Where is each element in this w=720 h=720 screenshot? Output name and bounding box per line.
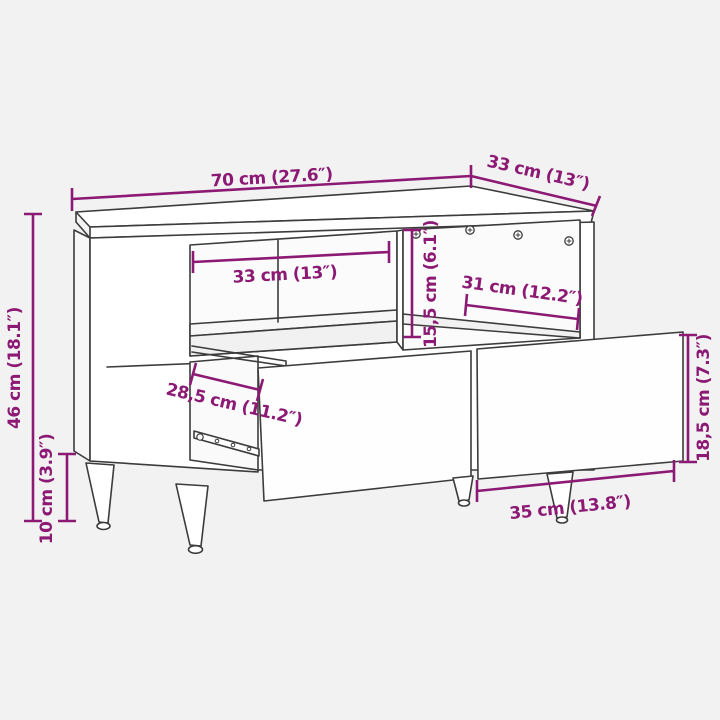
dim-compartment-height-label: 15,5 cm (6.1″) xyxy=(421,220,441,348)
screw-icon xyxy=(514,231,522,239)
rail-hole xyxy=(247,447,251,451)
right-drawer-front xyxy=(477,332,683,479)
dim-overall-height-label: 46 cm (18.1″) xyxy=(5,307,25,429)
left-drawer-foot-cap xyxy=(459,500,470,506)
left-side-panel xyxy=(74,230,90,461)
rail-hole xyxy=(215,439,219,443)
screw-icon xyxy=(466,226,474,234)
rail-bracket xyxy=(197,434,203,440)
center-divider xyxy=(397,230,403,350)
dim-drawer-front-height-label: 18,5 cm (7.3″) xyxy=(694,334,714,462)
rail-hole xyxy=(231,443,235,447)
front-left-leg-foot xyxy=(189,546,203,554)
back-left-leg-foot xyxy=(97,523,110,530)
dimension-diagram: 70 cm (27.6″) 33 cm (13″) 46 cm (18.1″) … xyxy=(0,0,720,720)
dim-leg-height-label: 10 cm (3.9″) xyxy=(37,434,57,545)
screw-icon xyxy=(565,237,573,245)
